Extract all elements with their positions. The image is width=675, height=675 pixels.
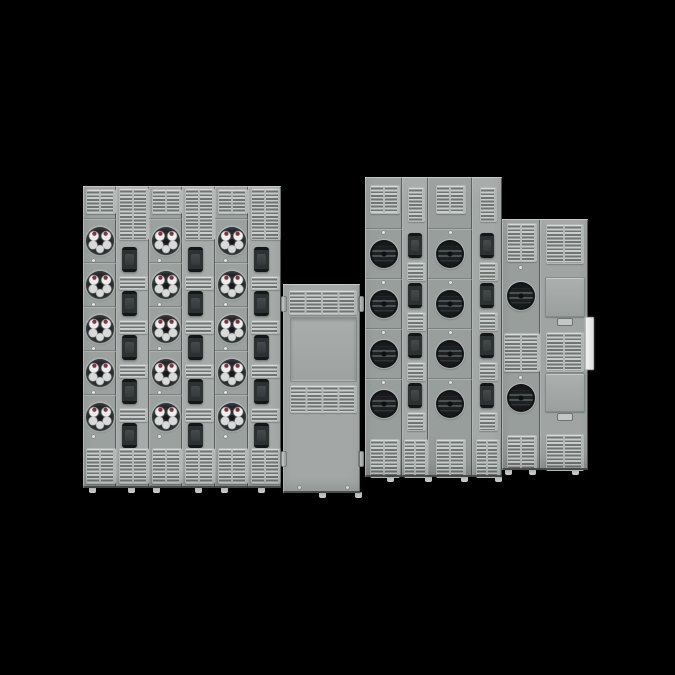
vent-grille — [546, 434, 584, 471]
vent-grille — [185, 276, 214, 290]
meter-cell — [215, 394, 248, 439]
breaker-handle — [188, 423, 203, 448]
ringless-meter-socket — [436, 290, 464, 318]
ring-meter-socket — [86, 315, 114, 343]
leveling-foot — [495, 476, 502, 482]
ringless-meter-socket — [370, 390, 398, 418]
meter-cell — [215, 218, 248, 263]
meter-column — [215, 186, 248, 488]
meter-cell — [428, 278, 472, 329]
vent-grille — [436, 439, 466, 478]
breaker-handle — [254, 291, 269, 316]
vent-grille — [218, 448, 248, 484]
meter-cell — [365, 328, 402, 379]
vent-grille — [119, 408, 148, 422]
breaker-handle — [122, 335, 137, 360]
screw-head — [158, 435, 161, 438]
screw-head — [519, 266, 522, 269]
breaker-handle — [188, 247, 203, 272]
vent-grille — [546, 224, 584, 264]
screw-head — [382, 231, 385, 234]
leveling-foot — [128, 487, 135, 493]
ring-meter-socket — [86, 403, 114, 431]
ring-meter-socket — [152, 315, 180, 343]
breaker-column — [402, 177, 428, 477]
leveling-foot — [195, 487, 202, 493]
vent-grille — [479, 312, 498, 331]
breaker-handle — [480, 333, 494, 358]
breaker-handle — [122, 247, 137, 272]
meter-column — [502, 219, 540, 470]
mounting-tab — [281, 296, 287, 312]
leveling-foot — [529, 469, 536, 475]
breaker-handle — [408, 383, 422, 408]
vent-grille — [119, 188, 149, 240]
mounting-tab — [358, 296, 364, 312]
vent-grille — [251, 448, 281, 484]
screw-head — [449, 381, 452, 384]
vent-grille — [479, 362, 498, 381]
recessed-cover-panel — [290, 317, 357, 382]
meter-bank-product-render — [0, 0, 675, 675]
ring-meter-socket — [152, 403, 180, 431]
ringless-meter-socket — [436, 390, 464, 418]
screw-head — [519, 376, 522, 379]
hinge-strip — [585, 317, 594, 370]
meter-cell — [428, 228, 472, 279]
meter-cell — [83, 218, 116, 263]
meter-cell — [83, 306, 116, 351]
screw-head — [92, 435, 95, 438]
vent-grille — [251, 188, 281, 240]
far-right-meter-bank — [502, 219, 588, 470]
ring-meter-socket — [152, 359, 180, 387]
vent-grille — [119, 276, 148, 290]
blank-door-panel — [545, 373, 585, 412]
screw-head — [346, 486, 349, 489]
breaker-handle — [188, 335, 203, 360]
meter-cell — [149, 262, 182, 307]
vent-grille — [152, 448, 182, 484]
center-blank-section — [283, 284, 360, 493]
screw-head — [449, 231, 452, 234]
vent-grille — [185, 408, 214, 422]
screw-head — [449, 331, 452, 334]
mounting-tab — [281, 451, 287, 467]
vent-grille — [86, 448, 116, 484]
ring-meter-socket — [218, 315, 246, 343]
vent-grille — [119, 320, 148, 334]
leveling-foot — [319, 492, 326, 498]
breaker-column — [248, 186, 281, 488]
meter-cell — [428, 328, 472, 379]
vent-grille — [408, 187, 425, 222]
leveling-foot — [355, 492, 362, 498]
ringless-meter-socket — [370, 240, 398, 268]
meter-cell — [83, 350, 116, 395]
vent-grille — [480, 187, 497, 222]
meter-cell — [215, 306, 248, 351]
breaker-handle — [254, 247, 269, 272]
meter-column — [149, 186, 182, 488]
vent-grille — [251, 408, 280, 422]
vent-grille — [546, 332, 584, 372]
ring-meter-socket — [86, 227, 114, 255]
blank-door-panel — [545, 277, 585, 317]
mounting-tab — [358, 451, 364, 467]
meter-cell — [83, 394, 116, 439]
ring-meter-socket — [152, 271, 180, 299]
meter-cell — [215, 350, 248, 395]
vent-grille — [436, 185, 466, 214]
vent-grille — [185, 320, 214, 334]
meter-cell — [365, 228, 402, 279]
blank-door-column — [540, 219, 588, 470]
ringless-meter-socket — [370, 340, 398, 368]
door-latch — [557, 318, 573, 326]
screw-head — [449, 281, 452, 284]
ring-meter-socket — [218, 271, 246, 299]
meter-column — [365, 177, 402, 477]
vent-grille — [370, 439, 400, 478]
ring-meter-socket — [152, 227, 180, 255]
vent-grille — [119, 364, 148, 378]
leveling-foot — [258, 487, 265, 493]
meter-cell — [149, 350, 182, 395]
meter-cell — [428, 378, 472, 429]
leveling-foot — [89, 487, 96, 493]
meter-cell — [149, 218, 182, 263]
leveling-foot — [572, 469, 579, 475]
vent-grille — [289, 290, 357, 315]
breaker-handle — [408, 283, 422, 308]
ring-meter-socket — [86, 271, 114, 299]
vent-grille — [407, 412, 426, 431]
meter-column — [83, 186, 116, 488]
breaker-handle — [254, 379, 269, 404]
meter-cell — [83, 262, 116, 307]
breaker-handle — [408, 233, 422, 258]
meter-cell — [365, 278, 402, 329]
door-latch — [557, 413, 573, 421]
ring-meter-socket — [218, 359, 246, 387]
meter-column — [428, 177, 472, 477]
ring-meter-socket — [86, 359, 114, 387]
vent-grille — [290, 385, 357, 413]
vent-grille — [218, 189, 248, 214]
vent-grille — [504, 333, 540, 372]
meter-cell — [365, 378, 402, 429]
screw-head — [382, 381, 385, 384]
left-meter-bank — [83, 186, 281, 488]
breaker-column — [182, 186, 215, 488]
breaker-column — [116, 186, 149, 488]
meter-cell — [149, 394, 182, 439]
breaker-handle — [480, 383, 494, 408]
breaker-handle — [254, 335, 269, 360]
vent-grille — [86, 189, 116, 214]
vent-grille — [476, 439, 500, 478]
screw-head — [298, 486, 301, 489]
vent-grille — [119, 448, 149, 484]
vent-grille — [185, 448, 215, 484]
vent-grille — [407, 362, 426, 381]
meter-cell — [215, 262, 248, 307]
vent-grille — [251, 364, 280, 378]
leveling-foot — [153, 487, 160, 493]
vent-grille — [251, 320, 280, 334]
leveling-foot — [461, 476, 468, 482]
vent-grille — [407, 262, 426, 281]
right-meter-bank — [365, 177, 502, 477]
screw-head — [224, 435, 227, 438]
breaker-handle — [480, 233, 494, 258]
vent-grille — [152, 189, 182, 214]
screw-head — [382, 281, 385, 284]
breaker-handle — [122, 423, 137, 448]
ring-meter-socket — [218, 403, 246, 431]
ringless-meter-socket — [436, 240, 464, 268]
leveling-foot — [505, 469, 512, 475]
breaker-handle — [480, 283, 494, 308]
vent-grille — [507, 223, 537, 262]
vent-grille — [507, 435, 537, 470]
vent-grille — [407, 312, 426, 331]
leveling-foot — [387, 476, 394, 482]
breaker-column — [472, 177, 502, 477]
ringless-meter-socket — [507, 384, 535, 412]
vent-grille — [370, 185, 400, 214]
ringless-meter-socket — [507, 282, 535, 310]
screw-head — [382, 331, 385, 334]
breaker-handle — [122, 379, 137, 404]
breaker-handle — [122, 291, 137, 316]
vent-grille — [251, 276, 280, 290]
ringless-meter-socket — [370, 290, 398, 318]
ringless-meter-socket — [436, 340, 464, 368]
vent-grille — [479, 262, 498, 281]
ring-meter-socket — [218, 227, 246, 255]
leveling-foot — [425, 476, 432, 482]
leveling-foot — [221, 487, 228, 493]
meter-cell — [149, 306, 182, 351]
vent-grille — [404, 439, 428, 478]
breaker-handle — [188, 379, 203, 404]
breaker-handle — [254, 423, 269, 448]
vent-grille — [185, 364, 214, 378]
vent-grille — [185, 188, 215, 240]
vent-grille — [479, 412, 498, 431]
breaker-handle — [408, 333, 422, 358]
breaker-handle — [188, 291, 203, 316]
